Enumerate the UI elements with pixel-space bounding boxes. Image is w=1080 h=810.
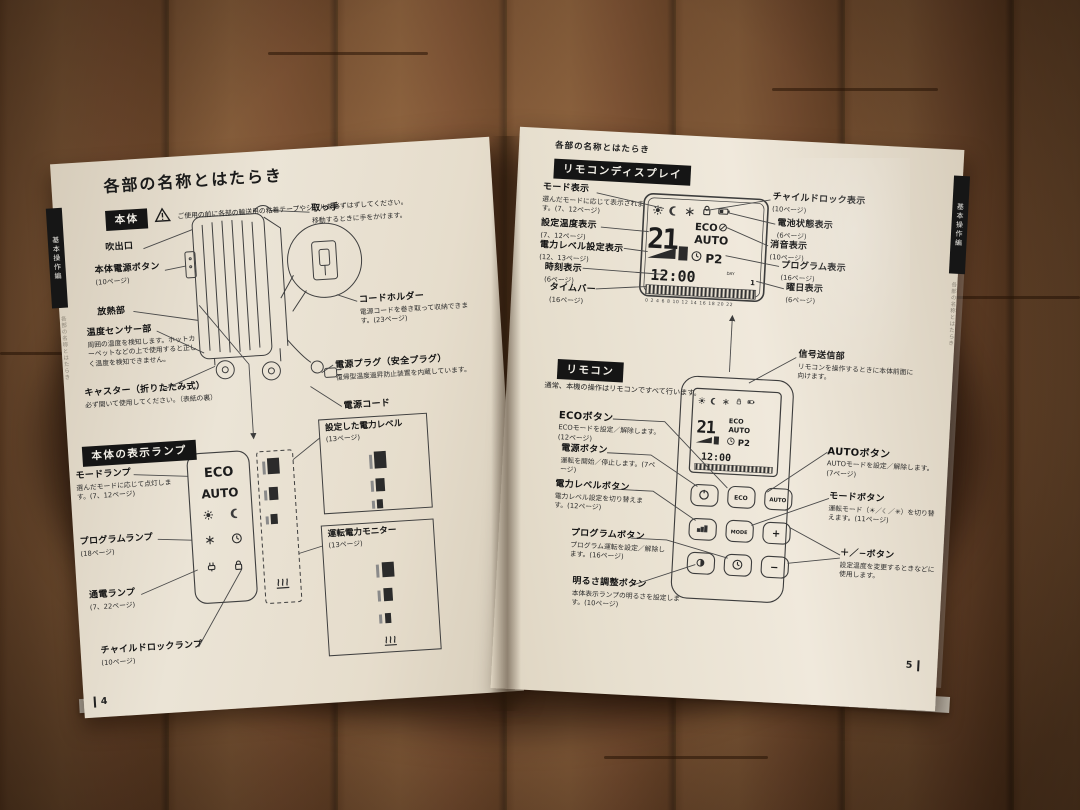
lcd-time: 12:00: [650, 266, 696, 286]
panel-auto-label: AUTO: [201, 485, 239, 501]
mode-button-label: MODE: [731, 529, 749, 536]
sun-icon: [203, 510, 213, 520]
label-mode-display: モード表示 選んだモードに応じて表示されます。(7、12ページ): [541, 182, 647, 219]
plus-button-label: +: [772, 528, 781, 539]
label-eco-button: ECOボタン ECOモードを設定／解除します。(12ページ): [558, 409, 672, 448]
auto-button-label: AUTO: [769, 497, 787, 504]
clock-icon: [733, 560, 742, 569]
section-badge-remote: リモコン: [557, 359, 624, 382]
minus-button-label: −: [770, 562, 779, 573]
cord-holder-detail: [285, 221, 364, 300]
floor-plank-joint: [604, 756, 768, 759]
mini-lcd-temp: 21: [696, 417, 716, 438]
clock-icon: [727, 438, 734, 445]
frost-icon: [206, 536, 214, 545]
lcd-day: 1: [750, 279, 755, 287]
label-mode-lamp: モードランプ 選んだモードに応じて点灯します。(7、12ページ): [75, 465, 179, 503]
warning-icon: [153, 207, 172, 224]
frost-icon: [686, 207, 694, 216]
plug-icon: [208, 562, 215, 571]
mini-lcd-eco: ECO: [729, 417, 745, 426]
panel-eco-label: ECO: [204, 464, 234, 481]
floor-plank-joint: [772, 88, 938, 91]
open-manual: 基本操作編 各部の名称とはたらき 各部の名称とはたらき 本体 ご使用の前に各部の…: [55, 118, 970, 728]
label-timebar: タイムバー (16ページ): [549, 283, 630, 309]
label-power-button: 電源ボタン 運転を開始／停止します。(7ページ): [560, 443, 662, 480]
level-bars-icon: [697, 525, 707, 532]
label-mode-button: モードボタン 運転モード（☀／☾／✳）を切り替えます。(11ページ): [828, 491, 938, 528]
label-signal: 信号送信部 リモコンを操作するときに本体前面に向けます。: [797, 350, 920, 388]
mute-icon: [719, 224, 726, 231]
lamp-panel: ECO AUTO: [186, 450, 257, 604]
manual-page-left: 基本操作編 各部の名称とはたらき 各部の名称とはたらき 本体 ご使用の前に各部の…: [50, 137, 524, 719]
label-sensor: 温度センサー部 周囲の温度を検知します。ホットカーペットなどの上で使用すると正し…: [86, 321, 200, 369]
eco-button-label: ECO: [734, 494, 748, 502]
mini-lcd-program: P2: [737, 439, 750, 450]
label-auto-button: AUTOボタン AUTOモードを設定／解除します。(7ページ): [826, 445, 940, 484]
power-icon: [700, 490, 709, 500]
clock-icon: [692, 252, 701, 261]
page-number-right: 5: [905, 660, 919, 672]
battery-icon: [719, 209, 730, 215]
lcd-day-caption: DAY: [726, 271, 735, 276]
page-number-left: 4: [94, 696, 108, 708]
label-plus-minus-button: ＋／−ボタン 設定温度を変更するときなどに使用します。: [839, 548, 939, 585]
level-bars-icon: [262, 458, 283, 525]
section-badge-body: 本体: [105, 208, 148, 231]
set-level-bars: [369, 451, 390, 509]
moon-icon: [231, 509, 237, 518]
label-level-button: 電力レベルボタン 電力レベル設定を切り替えます。(12ページ): [554, 479, 652, 516]
manual-page-right: 基本操作編 各部の名称とはたらき 各部の名称とはたらき リモコンディスプレイ 2…: [491, 127, 965, 712]
photo-of-manual: { "left_page": { "title": "各部の名称とはたらき", …: [0, 0, 1080, 810]
label-brightness-button: 明るさ調整ボタン 本体表示ランプの明るさを設定します。(10ページ): [571, 576, 685, 614]
mini-lcd-time: 12:00: [701, 452, 732, 465]
clock-icon: [232, 534, 241, 543]
power-button: [690, 484, 718, 506]
label-program-button: プログラムボタン プログラム運転を設定／解除します。(16ページ): [569, 528, 671, 565]
lcd-program: P2: [705, 252, 723, 267]
monitor-bars: [376, 562, 398, 624]
heat-icon: [276, 578, 289, 588]
lock-icon: [235, 561, 242, 570]
brightness-icon: [697, 559, 704, 566]
remote-control: 21 ECO AUTO P2 12:00 ECO AUTO MODE: [671, 376, 798, 604]
moon-icon: [670, 207, 676, 216]
lcd-auto: AUTO: [694, 233, 729, 248]
mini-lcd-auto: AUTO: [728, 426, 750, 435]
heater-diagram: [182, 200, 369, 386]
remote-lcd: 21 ECO AUTO P2 12:00 DAY 1 0 2 4 6 8 10 …: [639, 193, 769, 309]
heat-icon: [384, 636, 397, 645]
floor-plank-joint: [268, 52, 428, 55]
